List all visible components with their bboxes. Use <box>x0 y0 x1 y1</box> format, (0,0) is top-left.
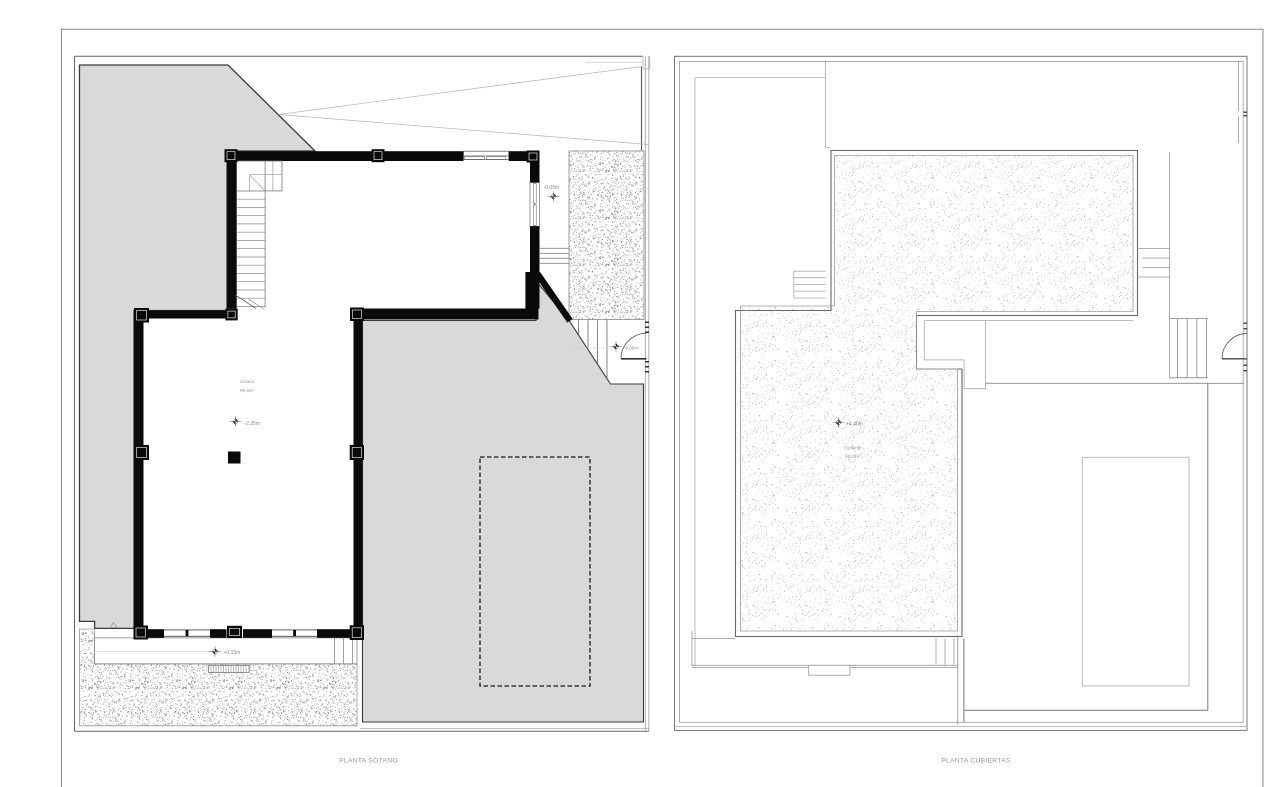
svg-text:-2,35m: -2,35m <box>245 421 261 427</box>
svg-text:99,8m²: 99,8m² <box>240 388 255 393</box>
svg-text:Sótano: Sótano <box>240 379 255 384</box>
svg-text:Cubierta: Cubierta <box>843 446 861 451</box>
svg-text:PLANTA CUBIERTAS: PLANTA CUBIERTAS <box>941 758 1011 765</box>
svg-text:PLANTA SÓTANO: PLANTA SÓTANO <box>339 756 398 765</box>
svg-text:-0,05m: -0,05m <box>624 346 638 351</box>
svg-text:-0,09m: -0,09m <box>544 185 560 191</box>
svg-text:+4,40m: +4,40m <box>846 422 863 428</box>
svg-text:+0,15m: +0,15m <box>224 650 241 656</box>
svg-text:56,0m²: 56,0m² <box>845 454 860 459</box>
